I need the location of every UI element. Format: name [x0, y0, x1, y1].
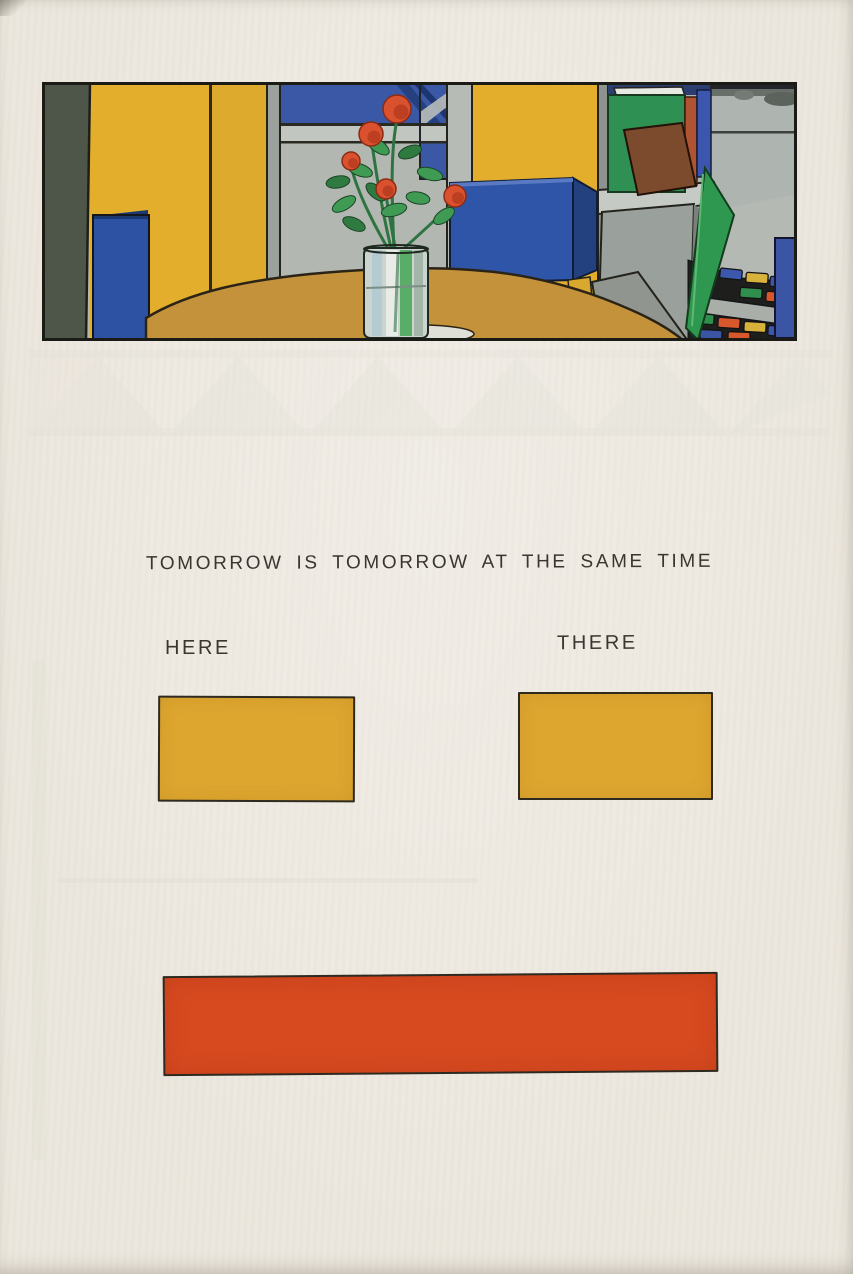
blue-bar — [775, 238, 796, 338]
books — [608, 87, 711, 195]
there-rectangle — [518, 692, 713, 800]
merged-rectangle — [163, 972, 719, 1076]
here-label: HERE — [165, 637, 231, 660]
artwork-illustration — [42, 82, 797, 341]
center-blue-box — [450, 178, 597, 283]
showthrough-column — [32, 660, 46, 1160]
showthrough-zigzag — [28, 350, 830, 436]
there-label: THERE — [557, 632, 638, 656]
left-blue-box — [93, 210, 149, 341]
glass-vase — [364, 245, 428, 338]
caption-text: TOMORROW IS TOMORROW AT THE SAME TIME — [146, 551, 713, 575]
page-corner-shadow — [0, 0, 26, 16]
showthrough-line — [58, 878, 478, 883]
artwork-canvas — [42, 82, 797, 341]
book-page: TOMORROW IS TOMORROW AT THE SAME TIME HE… — [0, 0, 853, 1274]
here-rectangle — [158, 696, 355, 803]
